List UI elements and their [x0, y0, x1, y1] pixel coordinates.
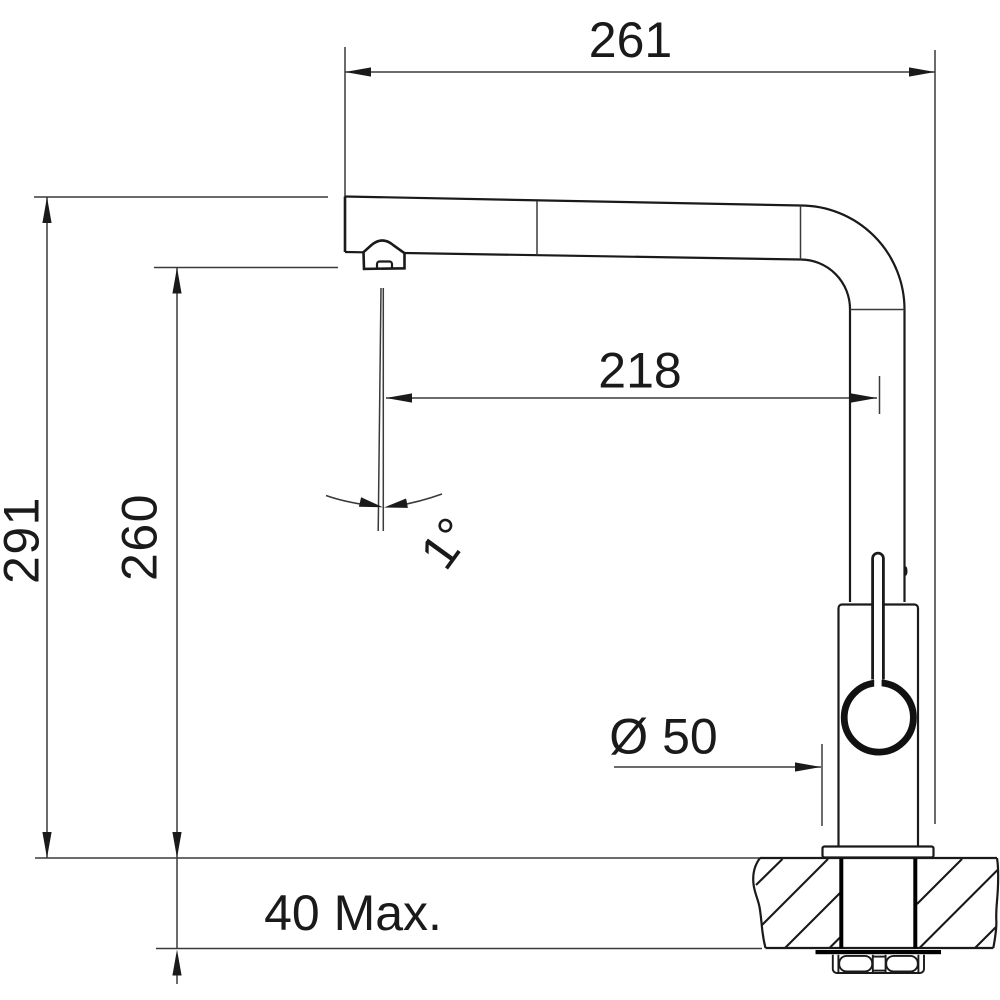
svg-text:260: 260	[112, 493, 168, 581]
svg-text:218: 218	[598, 343, 681, 399]
svg-text:40 Max.: 40 Max.	[264, 885, 442, 941]
svg-text:261: 261	[589, 12, 672, 68]
svg-text:Ø 50: Ø 50	[609, 709, 717, 765]
svg-text:291: 291	[0, 496, 50, 584]
